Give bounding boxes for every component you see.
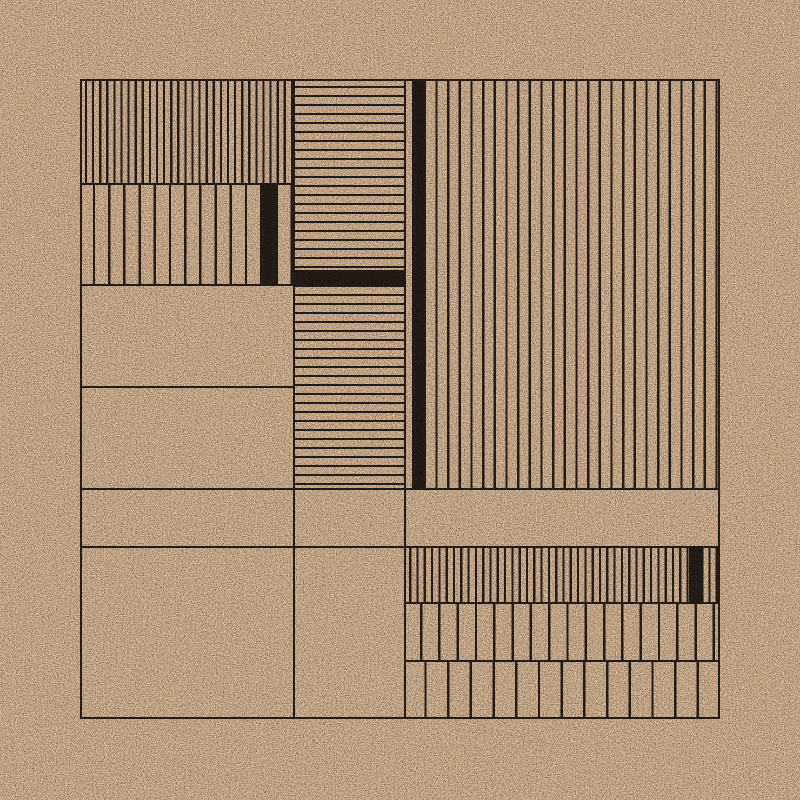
panel-right-empty	[404, 488, 720, 546]
grid-line-vertical-0	[80, 79, 82, 719]
grid-line-left-col-0	[80, 183, 295, 185]
panel-middle-hlines-lower	[293, 287, 404, 488]
grid-line-vertical-3	[718, 79, 720, 719]
panel-left-dense-vertical	[80, 79, 293, 183]
page-background	[0, 0, 800, 800]
grid-line-right-col-1	[404, 660, 720, 662]
panel-left-empty-1	[80, 284, 293, 386]
panel-right-wide-vertical	[404, 660, 720, 719]
artwork-canvas	[80, 79, 720, 719]
grid-line-horizontal-2	[80, 546, 720, 548]
panel-middle-solid-band	[293, 270, 404, 287]
panel-left-empty-3	[80, 488, 293, 546]
grid-line-vertical-2	[404, 79, 406, 719]
grid-line-horizontal-3	[80, 717, 720, 719]
panel-right-dense-vertical-filled-stripe-0	[689, 546, 704, 602]
grid-line-left-col-2	[80, 386, 295, 388]
panel-right-medium-vertical	[404, 602, 720, 660]
grid-line-left-col-1	[80, 284, 295, 286]
panel-left-empty-4	[80, 546, 293, 719]
panel-left-wide-vertical	[80, 183, 293, 284]
grid-line-vertical-1	[293, 79, 295, 719]
panel-middle-empty-1	[293, 488, 404, 546]
panel-right-tall-vertical	[404, 79, 720, 488]
panel-left-empty-2	[80, 386, 293, 488]
panel-right-dense-vertical	[404, 546, 720, 602]
panel-middle-empty-2	[293, 546, 404, 719]
panel-left-wide-vertical-filled-stripe-0	[260, 183, 278, 284]
grid-line-right-col-0	[404, 602, 720, 604]
grid-line-horizontal-0	[80, 79, 720, 81]
grid-line-horizontal-1	[80, 488, 720, 490]
panel-middle-hlines-upper	[293, 79, 404, 270]
panel-right-tall-vertical-filled-stripe-0	[412, 79, 426, 488]
